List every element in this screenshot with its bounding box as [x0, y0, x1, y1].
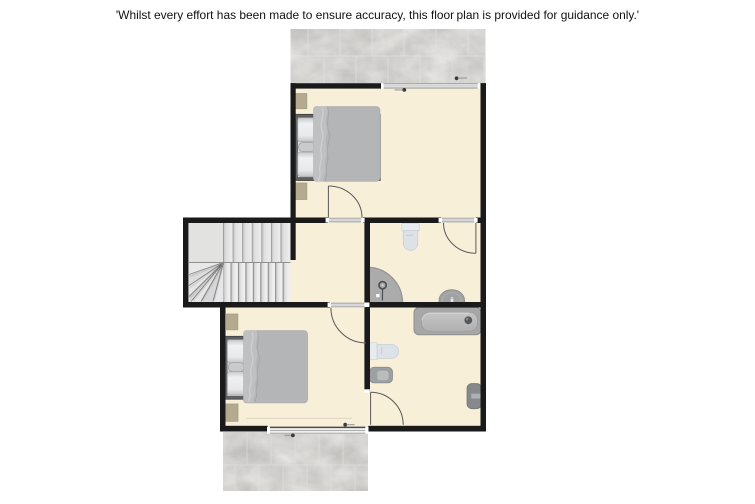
svg-text:'Whilst every effort has been: 'Whilst every effort has been made to en… [116, 8, 639, 22]
